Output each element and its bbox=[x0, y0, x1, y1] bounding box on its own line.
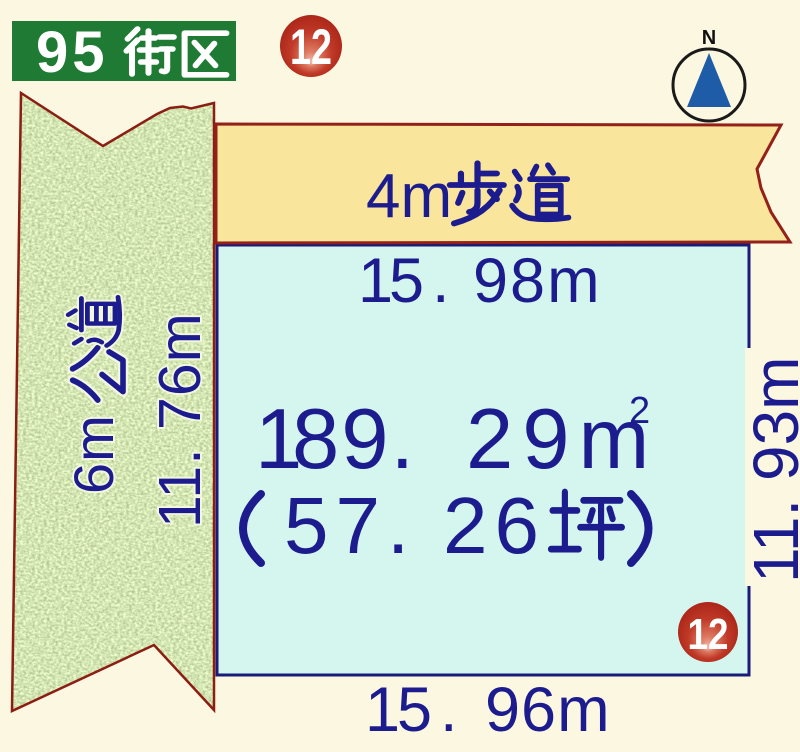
svg-text:95: 95 bbox=[36, 20, 109, 85]
svg-text:89.: 89. bbox=[292, 392, 416, 487]
svg-text:2: 2 bbox=[629, 390, 650, 432]
svg-text:6m: 6m bbox=[62, 414, 125, 494]
svg-text:4m: 4m bbox=[366, 162, 452, 231]
svg-text:1: 1 bbox=[358, 246, 393, 316]
svg-text:98m: 98m bbox=[473, 246, 602, 316]
svg-text:11. 93m: 11. 93m bbox=[740, 357, 800, 584]
svg-text:12: 12 bbox=[290, 19, 332, 75]
svg-text:12: 12 bbox=[688, 610, 729, 659]
svg-text:96m: 96m bbox=[485, 675, 611, 745]
svg-text:N: N bbox=[702, 27, 716, 49]
svg-text:5.: 5. bbox=[389, 246, 458, 316]
svg-text:57.: 57. bbox=[284, 481, 416, 570]
svg-text:26: 26 bbox=[443, 481, 546, 570]
svg-text:11. 76m: 11. 76m bbox=[147, 312, 213, 528]
svg-text:1: 1 bbox=[365, 675, 400, 745]
svg-text:5.: 5. bbox=[397, 675, 466, 745]
